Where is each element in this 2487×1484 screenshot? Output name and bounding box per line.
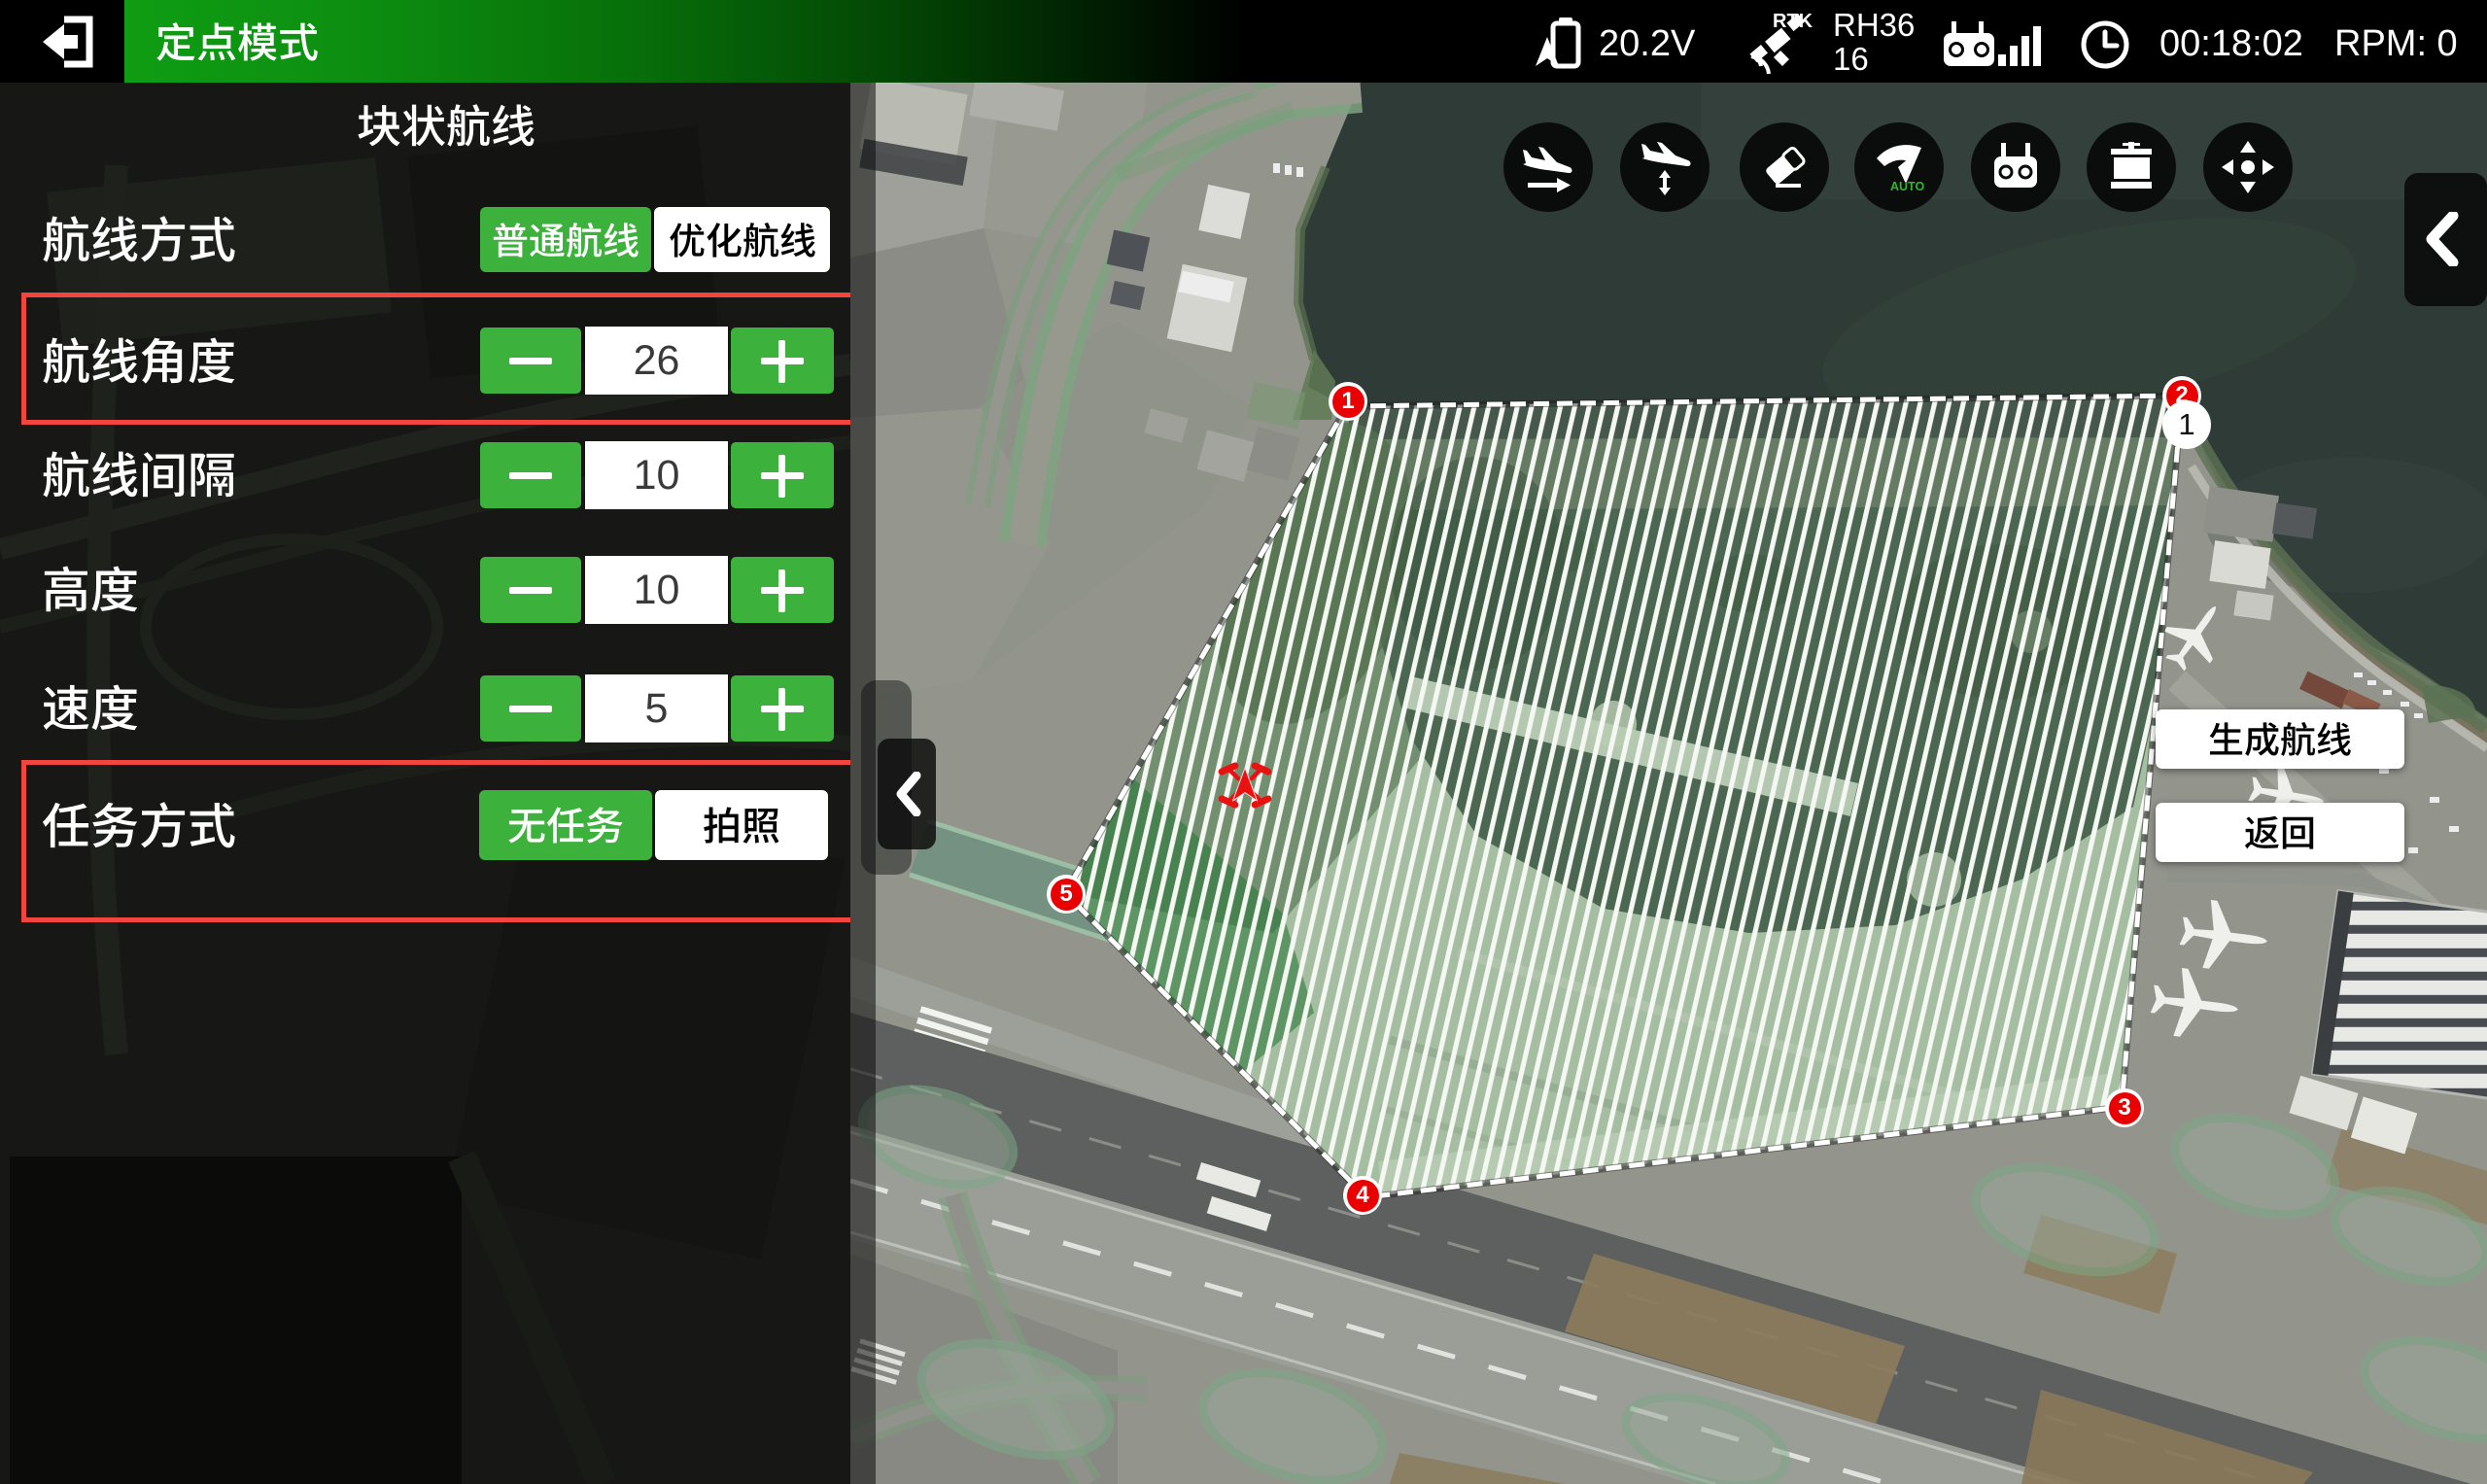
svg-text:AUTO: AUTO: [1890, 180, 1924, 193]
